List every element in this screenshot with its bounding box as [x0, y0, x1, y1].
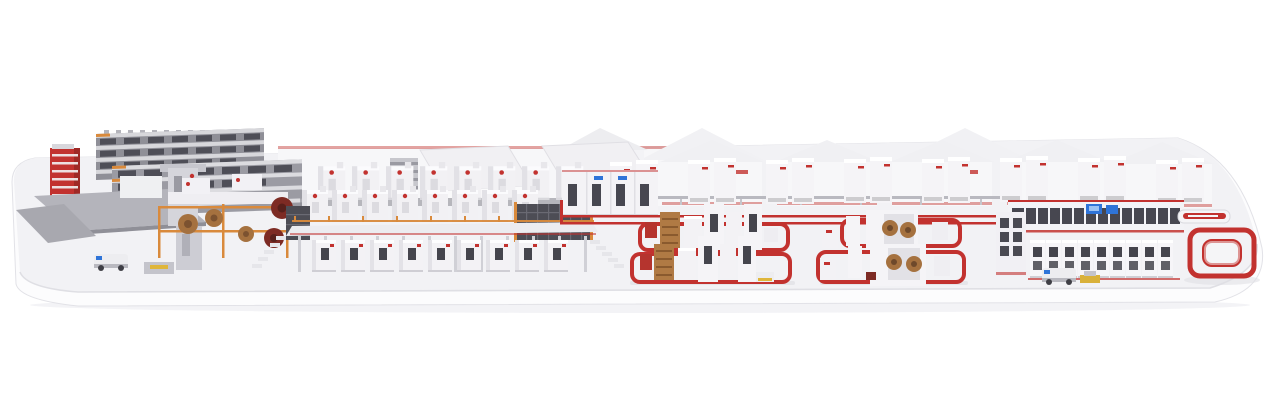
straight-conveyor [1178, 210, 1230, 223]
dry-end-cabinets [562, 170, 658, 217]
transfer-car [756, 272, 774, 282]
glass-tower [996, 212, 1026, 276]
logistics-gallery [1008, 200, 1184, 233]
ground-cabinets [312, 240, 568, 272]
plant-render [0, 0, 1280, 405]
pallet-shuttle [144, 262, 174, 274]
logistics-line [996, 200, 1184, 285]
